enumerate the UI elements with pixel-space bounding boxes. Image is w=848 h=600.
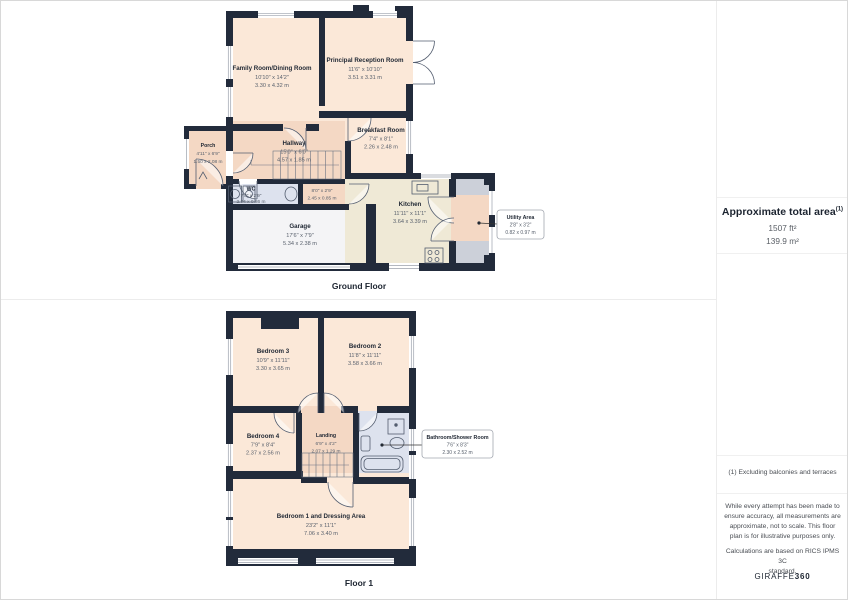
bedroom2-imperial: 11'8" x 11'11" — [349, 353, 382, 359]
kitchen-imperial: 11'11" x 11'1" — [394, 211, 427, 217]
bedroom3-name: Bedroom 3 — [257, 348, 290, 355]
landing-imperial: 6'9" x 4'2" — [316, 441, 337, 447]
ground-floor-plan: Utility Area 2'8" x 3'2" 0.82 x 0.97 m F… — [1, 1, 716, 299]
bedroom4-name: Bedroom 4 — [247, 433, 280, 440]
hallway-metric: 4.57 x 1.85 m — [277, 158, 311, 164]
disclaimer-text: While every attempt has been made to ens… — [721, 502, 844, 542]
disclaimer-line: plan is for illustrative purposes only. — [721, 532, 844, 542]
reception-imperial: 11'6" x 10'10" — [348, 67, 381, 73]
breakfast-imperial: 7'4" x 8'1" — [369, 137, 393, 143]
total-area-m: 139.9 m² — [717, 236, 848, 246]
bedroom3-metric: 3.30 x 3.65 m — [256, 366, 290, 372]
bathroom-name: Bathroom/Shower Room — [426, 435, 488, 441]
floorplan-page: Utility Area 2'8" x 3'2" 0.82 x 0.97 m F… — [0, 0, 848, 600]
summary-panel: Approximate total area(1) 1507 ft² 139.9… — [717, 1, 848, 600]
floor-divider — [1, 299, 716, 300]
bedroom1-name: Bedroom 1 and Dressing Area — [277, 513, 366, 520]
divider — [717, 455, 848, 456]
family-room-name: Family Room/Dining Room — [232, 65, 312, 72]
utility-name: Utility Area — [507, 215, 535, 221]
landing-name: Landing — [316, 433, 336, 439]
utility-metric: 0.82 x 0.97 m — [505, 230, 535, 236]
disclaimer-line: While every attempt has been made to — [721, 502, 844, 512]
bedroom4-imperial: 7'9" x 8'4" — [251, 443, 275, 449]
bedroom2-metric: 3.58 x 3.66 m — [348, 361, 382, 367]
disclaimer-line: approximate, not to scale. This floor — [721, 522, 844, 532]
breakfast-name: Breakfast Room — [357, 127, 405, 134]
divider — [717, 197, 848, 198]
bedroom3-imperial: 10'9" x 11'11" — [257, 358, 290, 364]
total-area-footnote-marker: (1) — [836, 207, 843, 213]
bedroom1-imperial: 23'2" x 11'1" — [306, 523, 336, 529]
total-area-title: Approximate total area(1) — [717, 206, 848, 218]
floor1-title: Floor 1 — [345, 578, 374, 588]
family-room-imperial: 10'10" x 14'2" — [255, 75, 289, 81]
inner-hall-imperial: 8'0" x 2'9" — [312, 188, 333, 194]
family-room-metric: 3.30 x 4.32 m — [255, 83, 289, 89]
ground-floor-title: Ground Floor — [332, 281, 387, 291]
garage-metric: 5.34 x 2.38 m — [283, 241, 317, 247]
divider — [717, 493, 848, 494]
disclaimer-line: ensure accuracy, all measurements are — [721, 512, 844, 522]
divider — [717, 253, 848, 254]
porch-imperial: 4'11" x 6'9" — [196, 151, 220, 157]
porch-metric: 1.50 x 2.08 m — [193, 159, 222, 165]
floor1-plan: Bathroom/Shower Room 7'6" x 8'3" 2.30 x … — [1, 299, 716, 600]
wc-imperial: 7'8" x 2'9" — [241, 193, 262, 199]
kitchen-metric: 3.64 x 3.39 m — [393, 219, 427, 225]
kitchen-name: Kitchen — [399, 201, 422, 208]
hallway-name: Hallway — [282, 140, 306, 147]
breakfast-metric: 2.26 x 2.48 m — [364, 145, 398, 151]
bathroom-metric: 2.30 x 2.52 m — [442, 450, 472, 456]
exclusion-footnote: (1) Excluding balconies and terraces — [717, 469, 848, 476]
porch-name: Porch — [201, 143, 216, 149]
total-area-ft: 1507 ft² — [717, 223, 848, 233]
panel-divider — [716, 1, 717, 600]
bathroom-imperial: 7'6" x 8'3" — [447, 443, 469, 449]
giraffe360-logo: GIRAFFE360 — [717, 572, 848, 581]
reception-metric: 3.51 x 3.31 m — [348, 75, 382, 81]
reception-name: Principal Reception Room — [326, 57, 404, 64]
bedroom1-metric: 7.06 x 3.40 m — [304, 531, 338, 537]
utility-imperial: 2'8" x 3'2" — [510, 223, 532, 229]
bedroom4-metric: 2.37 x 2.56 m — [246, 451, 280, 457]
landing-metric: 2.07 x 1.29 m — [311, 449, 340, 455]
wc-name: WC — [247, 187, 256, 193]
hallway-imperial: 15'0" x 6'0" — [280, 150, 308, 156]
bedroom2-name: Bedroom 2 — [349, 343, 382, 350]
garage-imperial: 17'6" x 7'9" — [286, 233, 314, 239]
garage-name: Garage — [289, 223, 311, 230]
inner-hall-metric: 2.45 x 0.85 m — [307, 196, 336, 202]
wc-metric: 2.34 x 0.86 m — [236, 199, 265, 205]
standard-line: Calculations are based on RICS IPMS 3C — [721, 547, 844, 567]
